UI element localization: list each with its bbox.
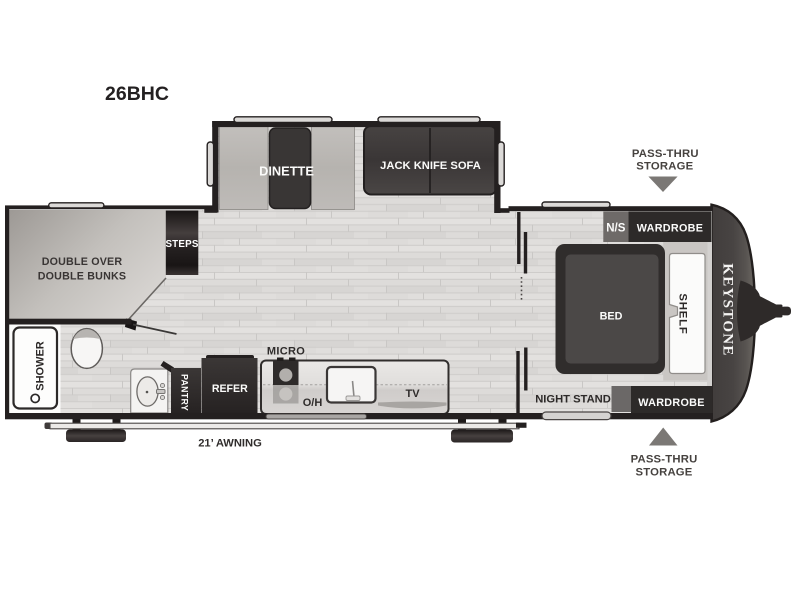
svg-text:DOUBLE BUNKS: DOUBLE BUNKS xyxy=(38,271,127,283)
svg-text:21’ AWNING: 21’ AWNING xyxy=(198,438,262,450)
svg-text:MICRO: MICRO xyxy=(267,346,305,358)
svg-text:PANTRY: PANTRY xyxy=(180,374,190,411)
svg-text:DOUBLE OVER: DOUBLE OVER xyxy=(42,256,123,268)
svg-text:REFER: REFER xyxy=(212,383,248,395)
svg-text:WARDROBE: WARDROBE xyxy=(637,223,704,235)
svg-text:SHELF: SHELF xyxy=(677,293,689,334)
svg-text:STORAGE: STORAGE xyxy=(635,467,692,479)
svg-text:SHOWER: SHOWER xyxy=(35,341,47,391)
svg-text:JACK KNIFE SOFA: JACK KNIFE SOFA xyxy=(380,160,481,172)
svg-text:BED: BED xyxy=(600,311,623,323)
svg-text:PASS-THRU: PASS-THRU xyxy=(631,454,698,466)
svg-text:N/S: N/S xyxy=(606,223,626,235)
svg-text:TV: TV xyxy=(405,388,420,400)
svg-text:STORAGE: STORAGE xyxy=(636,161,693,173)
svg-text:O/H: O/H xyxy=(303,397,323,409)
svg-text:KEYSTONE: KEYSTONE xyxy=(720,263,736,357)
svg-text:PASS-THRU: PASS-THRU xyxy=(632,148,699,160)
svg-text:WARDROBE: WARDROBE xyxy=(638,397,705,409)
svg-text:STEPS: STEPS xyxy=(165,239,198,250)
svg-text:NIGHT STAND: NIGHT STAND xyxy=(535,394,611,406)
svg-text:26BHC: 26BHC xyxy=(105,83,169,105)
svg-text:DINETTE: DINETTE xyxy=(259,164,314,179)
